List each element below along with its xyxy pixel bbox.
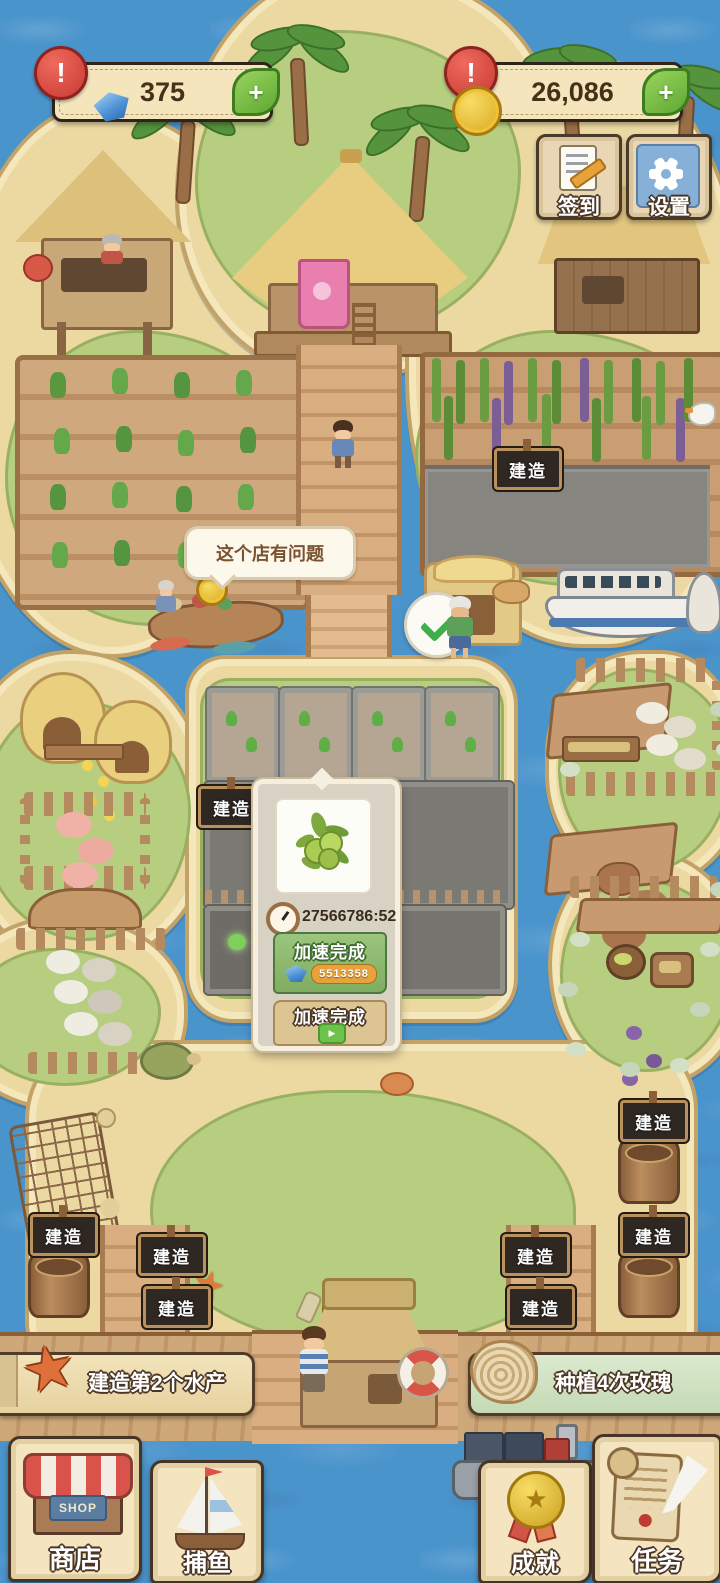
pig-pen-fence[interactable] bbox=[24, 866, 146, 890]
sugarcane-stalks bbox=[432, 358, 441, 422]
purple-birds[interactable] bbox=[626, 1026, 642, 1040]
corn-plants bbox=[50, 372, 66, 398]
feed-trough bbox=[562, 736, 640, 762]
speedup-ad-button[interactable]: 加速完成 ▶ bbox=[273, 1000, 387, 1046]
roof-top bbox=[322, 1278, 416, 1310]
shell-icon bbox=[470, 1340, 538, 1404]
bottom-pen-fence-right[interactable] bbox=[570, 876, 718, 898]
build-sign[interactable]: 建造 bbox=[620, 1214, 688, 1256]
sheep-pen-fence-right[interactable] bbox=[712, 678, 720, 770]
starfish-icon: ★ bbox=[10, 1330, 88, 1408]
build-sign-label: 建造 bbox=[158, 1295, 196, 1320]
seedling-plot[interactable] bbox=[353, 688, 425, 782]
npc-cook bbox=[101, 234, 123, 264]
build-sign[interactable]: 建造 bbox=[138, 1234, 206, 1276]
shop-sign-plate: SHOP bbox=[49, 1495, 107, 1521]
speech-bubble: 这个店有问题 bbox=[184, 526, 356, 580]
seedling-plot[interactable] bbox=[426, 688, 498, 782]
sugarcane-stone-plot[interactable] bbox=[425, 465, 710, 567]
build-sign-label: 建造 bbox=[45, 1223, 83, 1248]
achievements-button[interactable]: ★ 成就 bbox=[478, 1460, 592, 1583]
dog bbox=[492, 580, 530, 604]
task-scroll-icon bbox=[607, 1447, 703, 1539]
timer-text: 27566786:52 bbox=[302, 908, 396, 926]
npc-dock-man[interactable] bbox=[298, 1326, 330, 1398]
build-sign-label: 建造 bbox=[213, 795, 251, 820]
speedup-popup: 27566786:52 加速完成 5513358 加速完成 ▶ bbox=[253, 779, 400, 1051]
settings-label: 设置 bbox=[629, 191, 709, 221]
ladder bbox=[352, 303, 376, 347]
hay-hut[interactable] bbox=[94, 700, 172, 784]
plus-glyph: + bbox=[658, 77, 673, 108]
shop-button[interactable]: SHOP 商店 bbox=[8, 1436, 142, 1582]
roof-ridge bbox=[340, 149, 362, 163]
sheep-flock-left[interactable] bbox=[46, 950, 80, 974]
build-sign-label: 建造 bbox=[153, 1243, 191, 1268]
gem-cost-icon bbox=[285, 965, 307, 982]
build-sign-label: 建造 bbox=[522, 1295, 560, 1320]
game-screen: 这个店有问题 bbox=[0, 0, 720, 1583]
hut-center[interactable] bbox=[232, 155, 468, 355]
pink-banner bbox=[298, 259, 350, 329]
barrel[interactable] bbox=[28, 1252, 90, 1318]
gem-cost-value: 5513358 bbox=[312, 965, 376, 983]
play-glyph: ▶ bbox=[320, 1025, 344, 1042]
build-sign[interactable]: 建造 bbox=[620, 1100, 688, 1142]
pig-pen-fence[interactable] bbox=[140, 798, 150, 884]
trough-bar bbox=[575, 898, 720, 934]
feed-bowl bbox=[606, 944, 646, 980]
settings-button[interactable]: 设置 bbox=[626, 134, 712, 220]
npc-boy[interactable] bbox=[330, 420, 356, 472]
glow-item[interactable] bbox=[228, 934, 246, 950]
sheep-pen-fence-right[interactable] bbox=[566, 772, 720, 796]
speech-bubble-text: 这个店有问题 bbox=[216, 540, 324, 566]
sailboat-icon bbox=[169, 1471, 245, 1549]
chicks bbox=[82, 760, 93, 771]
feed-bowl bbox=[650, 952, 694, 988]
goose bbox=[688, 402, 716, 426]
alert-glyph: ! bbox=[466, 57, 475, 89]
fishing-label: 捕鱼 bbox=[153, 1543, 261, 1578]
npc-vendor[interactable] bbox=[156, 580, 176, 620]
gem-cost-pill: 5513358 bbox=[311, 964, 377, 984]
wood-bridge bbox=[28, 888, 142, 930]
build-sign[interactable]: 建造 bbox=[494, 448, 562, 490]
barrel[interactable] bbox=[618, 1252, 680, 1318]
build-sign[interactable]: 建造 bbox=[30, 1214, 98, 1256]
coin-icon bbox=[452, 86, 502, 136]
tasks-label: 任务 bbox=[595, 1541, 719, 1578]
ad-play-icon: ▶ bbox=[318, 1023, 346, 1044]
hut-left[interactable] bbox=[15, 150, 195, 340]
build-sign[interactable]: 建造 bbox=[143, 1286, 211, 1328]
coin-add-button[interactable]: + bbox=[642, 68, 690, 116]
build-sign-label: 建造 bbox=[517, 1243, 555, 1268]
shop-sign-text: SHOP bbox=[51, 1497, 105, 1519]
feeding-table bbox=[44, 744, 124, 760]
medal-star-glyph: ★ bbox=[510, 1474, 562, 1524]
tasks-button[interactable]: 任务 bbox=[592, 1434, 720, 1583]
medal-icon: ★ bbox=[505, 1471, 565, 1551]
signin-label: 签到 bbox=[539, 191, 619, 221]
seedling-plot[interactable] bbox=[207, 688, 279, 782]
achievements-label: 成就 bbox=[481, 1543, 589, 1578]
fishing-button[interactable]: 捕鱼 bbox=[150, 1460, 264, 1583]
npc-old-man[interactable] bbox=[446, 596, 474, 658]
alert-glyph: ! bbox=[56, 57, 65, 89]
gem-alert-badge: ! bbox=[34, 46, 88, 100]
build-sign[interactable]: 建造 bbox=[507, 1286, 575, 1328]
timer-clock-icon bbox=[266, 902, 300, 936]
olive-item-icon bbox=[289, 811, 359, 881]
shop-icon: SHOP bbox=[23, 1449, 127, 1533]
plus-glyph: + bbox=[248, 77, 263, 108]
sheep-flock-right[interactable] bbox=[636, 702, 668, 724]
build-sign[interactable]: 建造 bbox=[502, 1234, 570, 1276]
popup-item-box bbox=[275, 798, 372, 894]
speedup-gem-label: 加速完成 bbox=[275, 938, 385, 963]
gem-add-button[interactable]: + bbox=[232, 68, 280, 116]
signin-button[interactable]: 签到 bbox=[536, 134, 622, 220]
pig-pen-fence[interactable] bbox=[24, 792, 146, 816]
turtle bbox=[140, 1042, 194, 1080]
sheep-pen-fence-left[interactable] bbox=[16, 928, 166, 950]
stones bbox=[560, 762, 580, 777]
pink-pigs[interactable] bbox=[56, 812, 92, 838]
net-floats bbox=[96, 1108, 116, 1128]
build-sign-label: 建造 bbox=[635, 1109, 673, 1134]
rowboat bbox=[686, 572, 720, 634]
sheep-pen-fence-right[interactable] bbox=[576, 658, 716, 682]
seedling-plot[interactable] bbox=[280, 688, 352, 782]
gear-icon bbox=[649, 157, 683, 191]
speedup-gem-button[interactable]: 加速完成 5513358 bbox=[273, 932, 387, 994]
crab-small bbox=[380, 1072, 414, 1096]
shop-label: 商店 bbox=[11, 1539, 139, 1576]
dock-bridge-steps bbox=[306, 595, 392, 657]
pig-pen-fence[interactable] bbox=[20, 798, 30, 884]
yacht[interactable] bbox=[545, 560, 705, 640]
lifebuoy bbox=[400, 1350, 446, 1396]
build-sign-label: 建造 bbox=[509, 457, 547, 482]
build-sign-label: 建造 bbox=[635, 1223, 673, 1248]
crab-decoration bbox=[23, 254, 53, 282]
barrel[interactable] bbox=[618, 1138, 680, 1204]
